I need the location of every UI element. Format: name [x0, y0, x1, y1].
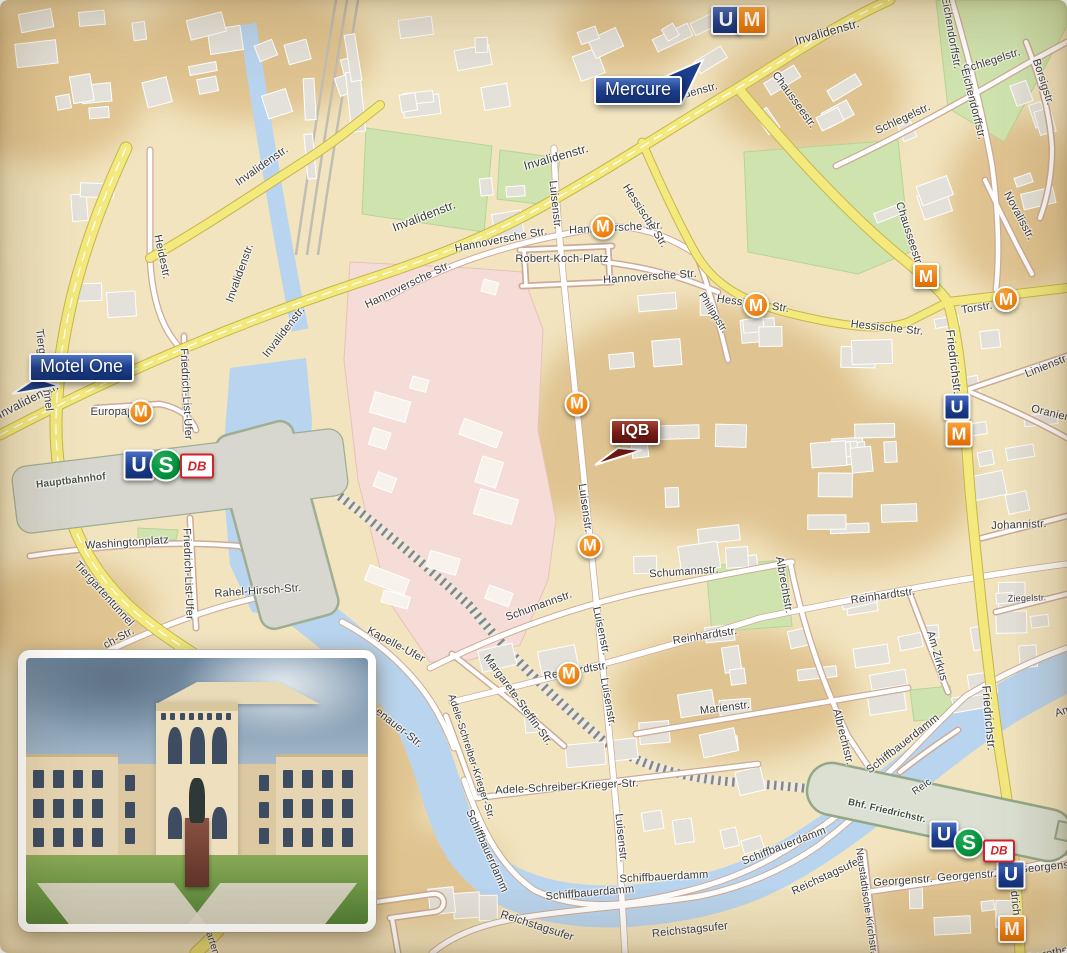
- building-photo: [18, 650, 376, 932]
- city-map[interactable]: Invalidenstr.Invalidenstr.Invalidenstr.I…: [0, 0, 1067, 953]
- s-bahn-icon: S: [954, 828, 985, 859]
- u-bahn-icon: U: [944, 394, 971, 421]
- metro-icon: M: [578, 534, 603, 559]
- db-icon: DB: [983, 840, 1015, 863]
- statue-figure: [189, 778, 204, 823]
- metro-icon: M: [946, 421, 973, 448]
- metro-icon: M: [565, 392, 590, 417]
- metro-icon: M: [129, 400, 154, 425]
- metro-icon: M: [557, 662, 582, 687]
- u-bahn-icon: U: [997, 861, 1026, 890]
- iqb-flag-marker[interactable]: IQB: [610, 419, 660, 445]
- metro-icon: M: [743, 292, 769, 318]
- db-icon: DB: [180, 454, 214, 479]
- photo-pediment: [156, 682, 320, 704]
- motel-one-flag-marker[interactable]: Motel One: [29, 353, 134, 382]
- s-bahn-icon: S: [150, 449, 183, 482]
- statue-pedestal: [185, 818, 209, 887]
- metro-icon: M: [993, 286, 1019, 312]
- metro-icon: M: [913, 263, 939, 289]
- metro-icon: M: [998, 915, 1026, 943]
- mercure-flag-marker[interactable]: Mercure: [594, 76, 682, 105]
- metro-icon: M: [737, 5, 767, 35]
- metro-icon: M: [591, 215, 616, 240]
